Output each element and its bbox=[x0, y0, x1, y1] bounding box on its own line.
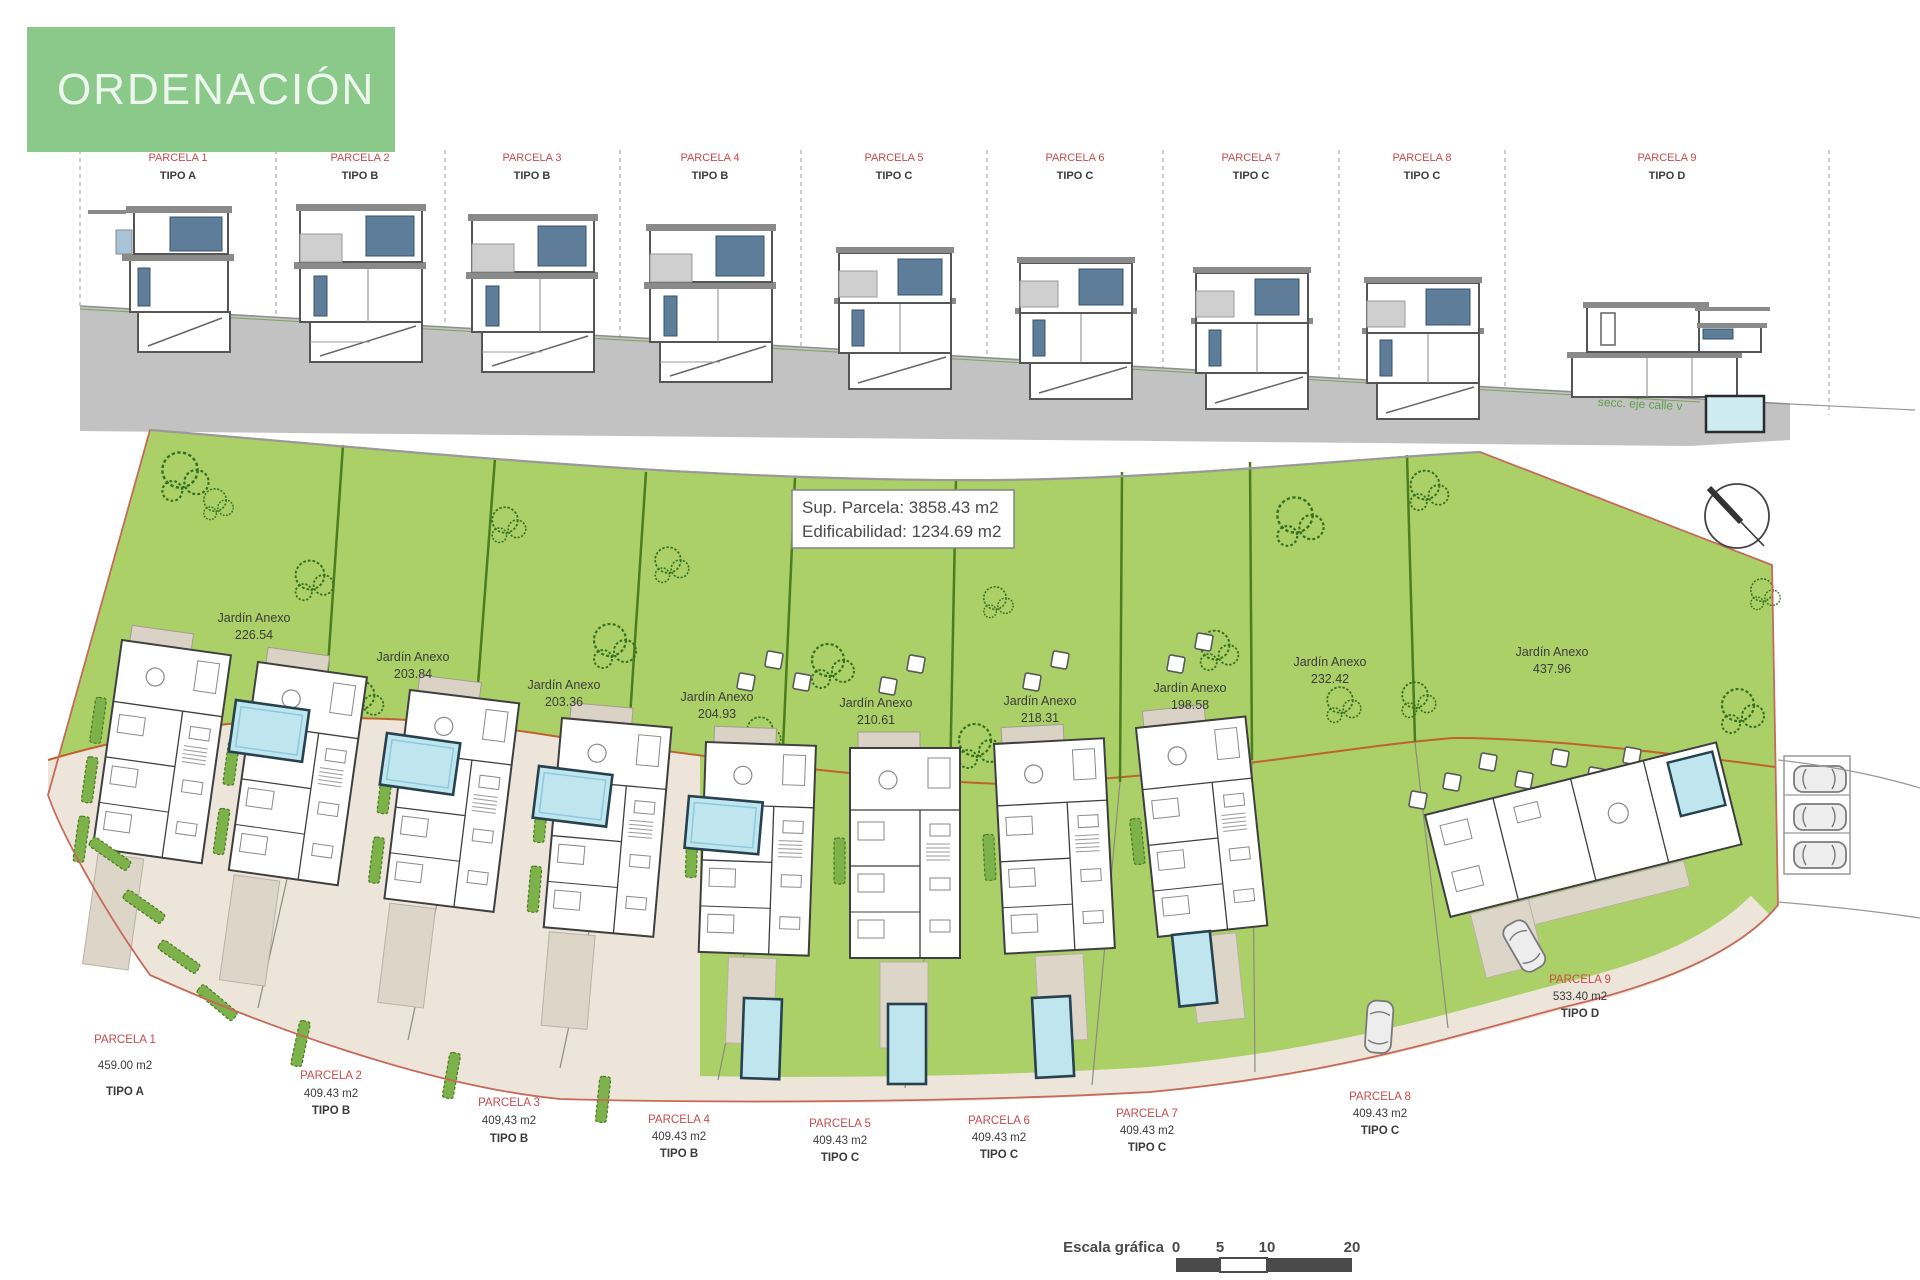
plot-7-area: 409.43 m2 bbox=[1120, 1125, 1174, 1137]
site-plan: Sup. Parcela: 3858.43 m2 Edificabilidad:… bbox=[48, 430, 1920, 1272]
garden-5-label: Jardín Anexo bbox=[840, 696, 913, 710]
section-parcel-5-name: PARCELA 5 bbox=[864, 152, 923, 164]
section-parcel-1-tipo: TIPO A bbox=[160, 170, 196, 182]
garden-3-area: 203.36 bbox=[545, 695, 583, 709]
plot-4-area: 409.43 m2 bbox=[652, 1131, 706, 1143]
plot-1-area: 459.00 m2 bbox=[98, 1060, 152, 1072]
section-parcel-4-name: PARCELA 4 bbox=[680, 152, 739, 164]
street-parking bbox=[1778, 756, 1920, 918]
section-parcel-7-tipo: TIPO C bbox=[1233, 170, 1270, 182]
plot-5-area: 409.43 m2 bbox=[813, 1135, 867, 1147]
scale-seg-1 bbox=[1176, 1258, 1220, 1272]
plot-7-name: PARCELA 7 bbox=[1116, 1108, 1178, 1120]
scale-seg-3 bbox=[1267, 1258, 1352, 1272]
garden-6-area: 218.31 bbox=[1021, 711, 1059, 725]
section-house-7 bbox=[1191, 267, 1313, 409]
section-parcel-7-name: PARCELA 7 bbox=[1221, 152, 1280, 164]
scale-tick-5: 5 bbox=[1216, 1239, 1224, 1256]
section-parcel-6-tipo: TIPO C bbox=[1057, 170, 1094, 182]
garden-6-label: Jardín Anexo bbox=[1004, 694, 1077, 708]
garden-5-area: 210.61 bbox=[857, 713, 895, 727]
garden-8-area: 232.42 bbox=[1311, 672, 1349, 686]
plot-3-area: 409,43 m2 bbox=[482, 1115, 536, 1127]
garden-9-label: Jardín Anexo bbox=[1516, 645, 1589, 659]
scale-tick-10: 10 bbox=[1259, 1239, 1276, 1256]
plot-9-name: PARCELA 9 bbox=[1549, 974, 1611, 986]
elevation-strip: secc. eje calle v PARCELA 1 TIPO A PARCE… bbox=[80, 150, 1915, 446]
section-house-6 bbox=[1015, 257, 1137, 399]
plot-2-area: 409.43 m2 bbox=[304, 1088, 358, 1100]
plot-3-name: PARCELA 3 bbox=[478, 1097, 540, 1109]
plot-4-name: PARCELA 4 bbox=[648, 1114, 710, 1126]
garden-3-label: Jardín Anexo bbox=[528, 678, 601, 692]
section-house-2 bbox=[294, 204, 426, 362]
plot-6-tipo: TIPO C bbox=[980, 1149, 1018, 1161]
section-parcel-8-tipo: TIPO C bbox=[1404, 170, 1441, 182]
garden-1-label: Jardín Anexo bbox=[218, 611, 291, 625]
section-parcel-2-tipo: TIPO B bbox=[342, 170, 379, 182]
scale-seg-2 bbox=[1220, 1258, 1267, 1272]
section-pool bbox=[1706, 396, 1764, 432]
garden-7-label: Jardín Anexo bbox=[1154, 681, 1227, 695]
plot-1-tipo: TIPO A bbox=[106, 1086, 144, 1098]
plot-2-tipo: TIPO B bbox=[312, 1105, 350, 1117]
plot-4-tipo: TIPO B bbox=[660, 1148, 698, 1160]
section-parcel-9-name: PARCELA 9 bbox=[1637, 152, 1696, 164]
info-line-2: Edificabilidad: 1234.69 m2 bbox=[802, 522, 1001, 541]
plot-6-name: PARCELA 6 bbox=[968, 1115, 1030, 1127]
section-house-5 bbox=[834, 247, 956, 389]
garden-2-label: Jardín Anexo bbox=[377, 650, 450, 664]
plot-9-area: 533.40 m2 bbox=[1553, 991, 1607, 1003]
plot-6-area: 409.43 m2 bbox=[972, 1132, 1026, 1144]
section-parcel-1-name: PARCELA 1 bbox=[148, 152, 207, 164]
garden-4-label: Jardín Anexo bbox=[681, 690, 754, 704]
north-icon bbox=[1705, 484, 1769, 548]
plot-8-area: 409.43 m2 bbox=[1353, 1108, 1407, 1120]
plot-1-name: PARCELA 1 bbox=[94, 1034, 156, 1046]
garden-9-area: 437.96 bbox=[1533, 662, 1571, 676]
scale-bar: Escala gráfica 0 5 10 20 bbox=[1063, 1239, 1360, 1272]
section-parcel-8-name: PARCELA 8 bbox=[1392, 152, 1451, 164]
section-house-9 bbox=[1567, 302, 1770, 397]
section-house-8 bbox=[1362, 277, 1484, 419]
plot-5-name: PARCELA 5 bbox=[809, 1118, 871, 1130]
info-box: Sup. Parcela: 3858.43 m2 Edificabilidad:… bbox=[792, 490, 1014, 548]
garden-2-area: 203.84 bbox=[394, 667, 432, 681]
section-parcel-4-tipo: TIPO B bbox=[692, 170, 729, 182]
plot-5-tipo: TIPO C bbox=[821, 1152, 859, 1164]
car-parcel8 bbox=[1364, 1000, 1394, 1054]
garden-8-label: Jardín Anexo bbox=[1294, 655, 1367, 669]
section-parcel-3-name: PARCELA 3 bbox=[502, 152, 561, 164]
scale-label: Escala gráfica bbox=[1063, 1239, 1165, 1256]
plot-2-name: PARCELA 2 bbox=[300, 1070, 362, 1082]
garden-7-area: 198.58 bbox=[1171, 698, 1209, 712]
section-parcel-5-tipo: TIPO C bbox=[876, 170, 913, 182]
terrain-tail-line bbox=[1790, 404, 1915, 410]
section-house-3 bbox=[466, 214, 598, 372]
scale-tick-20: 20 bbox=[1344, 1239, 1361, 1256]
scale-tick-0: 0 bbox=[1172, 1239, 1180, 1256]
section-parcel-3-tipo: TIPO B bbox=[514, 170, 551, 182]
info-line-1: Sup. Parcela: 3858.43 m2 bbox=[802, 498, 999, 517]
section-house-4 bbox=[644, 224, 776, 382]
plot-9-tipo: TIPO D bbox=[1561, 1008, 1599, 1020]
plot-8-tipo: TIPO C bbox=[1361, 1125, 1399, 1137]
ordenacion-sheet: ORDENACIÓN bbox=[0, 0, 1920, 1280]
plot-8-name: PARCELA 8 bbox=[1349, 1091, 1411, 1103]
section-parcel-6-name: PARCELA 6 bbox=[1045, 152, 1104, 164]
plot-7-tipo: TIPO C bbox=[1128, 1142, 1166, 1154]
plot-3-tipo: TIPO B bbox=[490, 1133, 528, 1145]
garden-4-area: 204.93 bbox=[698, 707, 736, 721]
drawing-canvas: secc. eje calle v PARCELA 1 TIPO A PARCE… bbox=[0, 0, 1920, 1280]
section-parcel-2-name: PARCELA 2 bbox=[330, 152, 389, 164]
section-parcel-9-tipo: TIPO D bbox=[1649, 170, 1686, 182]
garden-1-area: 226.54 bbox=[235, 628, 273, 642]
